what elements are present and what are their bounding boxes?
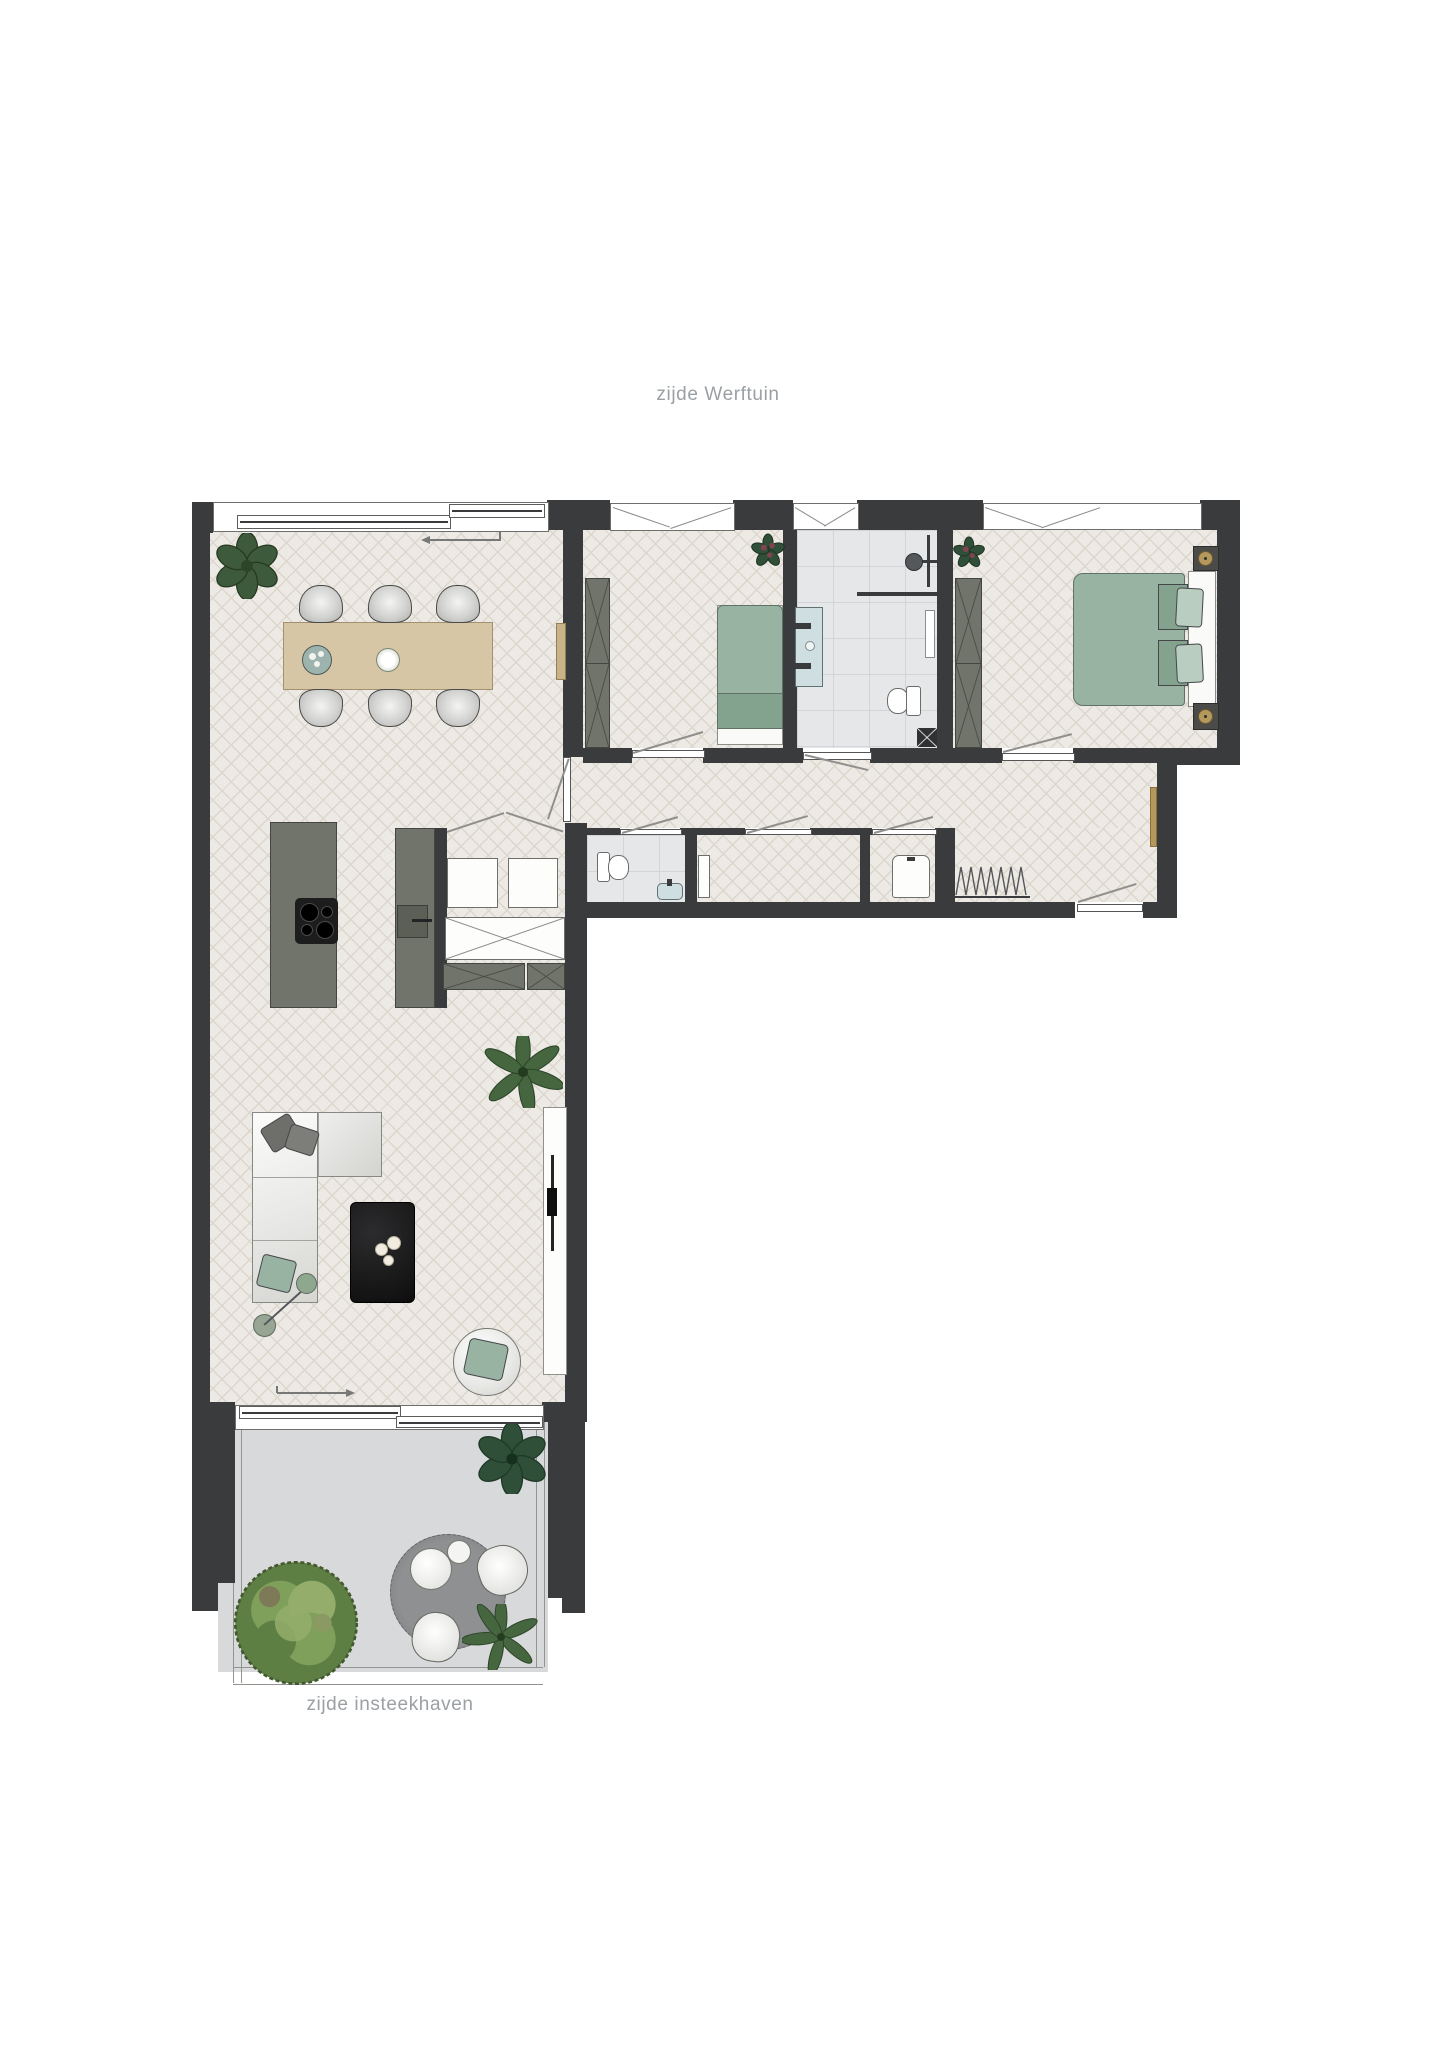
window-bathroom bbox=[793, 503, 859, 530]
wall-bottom-strip-b bbox=[1143, 902, 1177, 918]
wall-hall-north-b bbox=[703, 748, 803, 763]
closet-cabinet-b bbox=[527, 963, 565, 990]
vanity-tap-b bbox=[792, 663, 811, 669]
dining-chair bbox=[436, 585, 480, 623]
nightstand bbox=[1193, 703, 1219, 730]
wall-hall-south-b bbox=[680, 828, 745, 835]
table-bowl bbox=[302, 645, 332, 675]
wall-right-entry bbox=[1157, 765, 1177, 918]
toilet-bathroom-tank bbox=[906, 686, 921, 716]
door-entrance bbox=[1077, 904, 1143, 912]
floor-storage bbox=[697, 835, 860, 902]
label-side-bottom: zijde insteekhaven bbox=[280, 1694, 500, 1716]
wall-pier-dining-bed1 bbox=[547, 500, 610, 530]
wall-storage-tech bbox=[860, 835, 870, 902]
bed-single-foot bbox=[717, 693, 783, 729]
floorplan-canvas: zijde Werftuin zijde insteekhaven bbox=[0, 0, 1448, 2048]
bush-terrace bbox=[230, 1556, 362, 1690]
plant-living bbox=[483, 1036, 563, 1108]
plant-bedroom-2 bbox=[953, 536, 985, 570]
armchair-pillow bbox=[463, 1337, 510, 1382]
wall-hall-north-d bbox=[1073, 748, 1160, 763]
wall-terrace-left-tip bbox=[192, 1583, 218, 1611]
plant-bedroom-1 bbox=[751, 533, 785, 569]
dining-chair bbox=[368, 585, 412, 623]
wall-dining-bed1 bbox=[563, 530, 583, 757]
wall-bottom-strip-a bbox=[565, 902, 1075, 918]
kitchen-faucet bbox=[412, 919, 432, 922]
wall-terrace-right-tip bbox=[562, 1598, 585, 1613]
vanity-drain bbox=[805, 641, 815, 651]
coffee-table bbox=[350, 1202, 415, 1303]
sofa-seam bbox=[253, 1240, 317, 1241]
wall-right-bed2 bbox=[1217, 500, 1240, 763]
door-bedroom-2 bbox=[1002, 753, 1075, 761]
toilet-wc-bowl bbox=[608, 855, 629, 880]
plant-dining bbox=[211, 533, 283, 599]
appliance-right bbox=[508, 858, 558, 908]
wall-terrace-right bbox=[548, 1422, 585, 1598]
bed-single-duvet bbox=[717, 605, 783, 701]
entry-console bbox=[1150, 787, 1157, 847]
wall-step-right bbox=[1157, 748, 1240, 765]
window-living-panel-left bbox=[239, 1406, 401, 1419]
wall-terrace-left bbox=[192, 1422, 235, 1583]
shower-door bbox=[925, 610, 935, 658]
terrace-side-table bbox=[447, 1540, 471, 1564]
wall-pier-bed1-bath bbox=[733, 500, 793, 530]
window-bedroom-2 bbox=[983, 503, 1202, 530]
wall-living-se bbox=[542, 1402, 587, 1422]
tv-screen bbox=[547, 1188, 557, 1216]
arc-lamp-shade bbox=[296, 1273, 317, 1294]
wall-pier-bath-bed2 bbox=[857, 500, 983, 530]
window-dining-panel-left bbox=[237, 515, 451, 529]
bed-pillow bbox=[1175, 587, 1204, 627]
label-side-top: zijde Werftuin bbox=[598, 384, 838, 406]
wall-left bbox=[192, 502, 210, 1422]
wall-hall-north-a bbox=[583, 748, 632, 763]
closet-shelf-unit bbox=[445, 917, 565, 960]
table-flowers bbox=[376, 648, 400, 672]
bed-pillow bbox=[1175, 643, 1204, 683]
shower-head bbox=[905, 553, 923, 571]
toilet-basin-tap bbox=[667, 879, 672, 886]
cooktop bbox=[295, 898, 338, 944]
vanity-tap-a bbox=[792, 623, 811, 629]
wall-living-sw bbox=[192, 1402, 235, 1422]
terrace-table bbox=[410, 1548, 452, 1590]
nightstand bbox=[1193, 546, 1219, 571]
sofa-seam bbox=[253, 1177, 317, 1178]
storage-cabinet bbox=[698, 855, 710, 898]
wall-hall-north-c bbox=[870, 748, 1002, 763]
shower-glass bbox=[857, 592, 937, 596]
shaft bbox=[917, 728, 937, 747]
sofa-seam bbox=[318, 1113, 319, 1176]
tv-cabinet bbox=[543, 1107, 567, 1375]
window-dining-panel-right bbox=[449, 504, 545, 518]
wall-toilet-storage bbox=[685, 835, 697, 902]
wall-top-left-corner bbox=[192, 502, 213, 533]
dining-sideboard bbox=[556, 623, 566, 680]
coat-rack bbox=[948, 862, 1032, 900]
door-bedroom-1 bbox=[632, 750, 705, 758]
wall-hall-south-a bbox=[587, 828, 620, 835]
appliance-left bbox=[447, 858, 498, 908]
wall-bath-bed2 bbox=[937, 530, 953, 748]
plant-terrace-bottom bbox=[462, 1604, 540, 1670]
wardrobe-bedroom-2 bbox=[955, 578, 982, 748]
wardrobe-bedroom-1 bbox=[585, 578, 610, 748]
plant-terrace-top bbox=[476, 1424, 548, 1494]
closet-cabinet-a bbox=[443, 963, 525, 990]
wall-hall-south-c bbox=[810, 828, 872, 835]
washing-machine bbox=[892, 855, 930, 898]
dining-chair bbox=[299, 585, 343, 623]
